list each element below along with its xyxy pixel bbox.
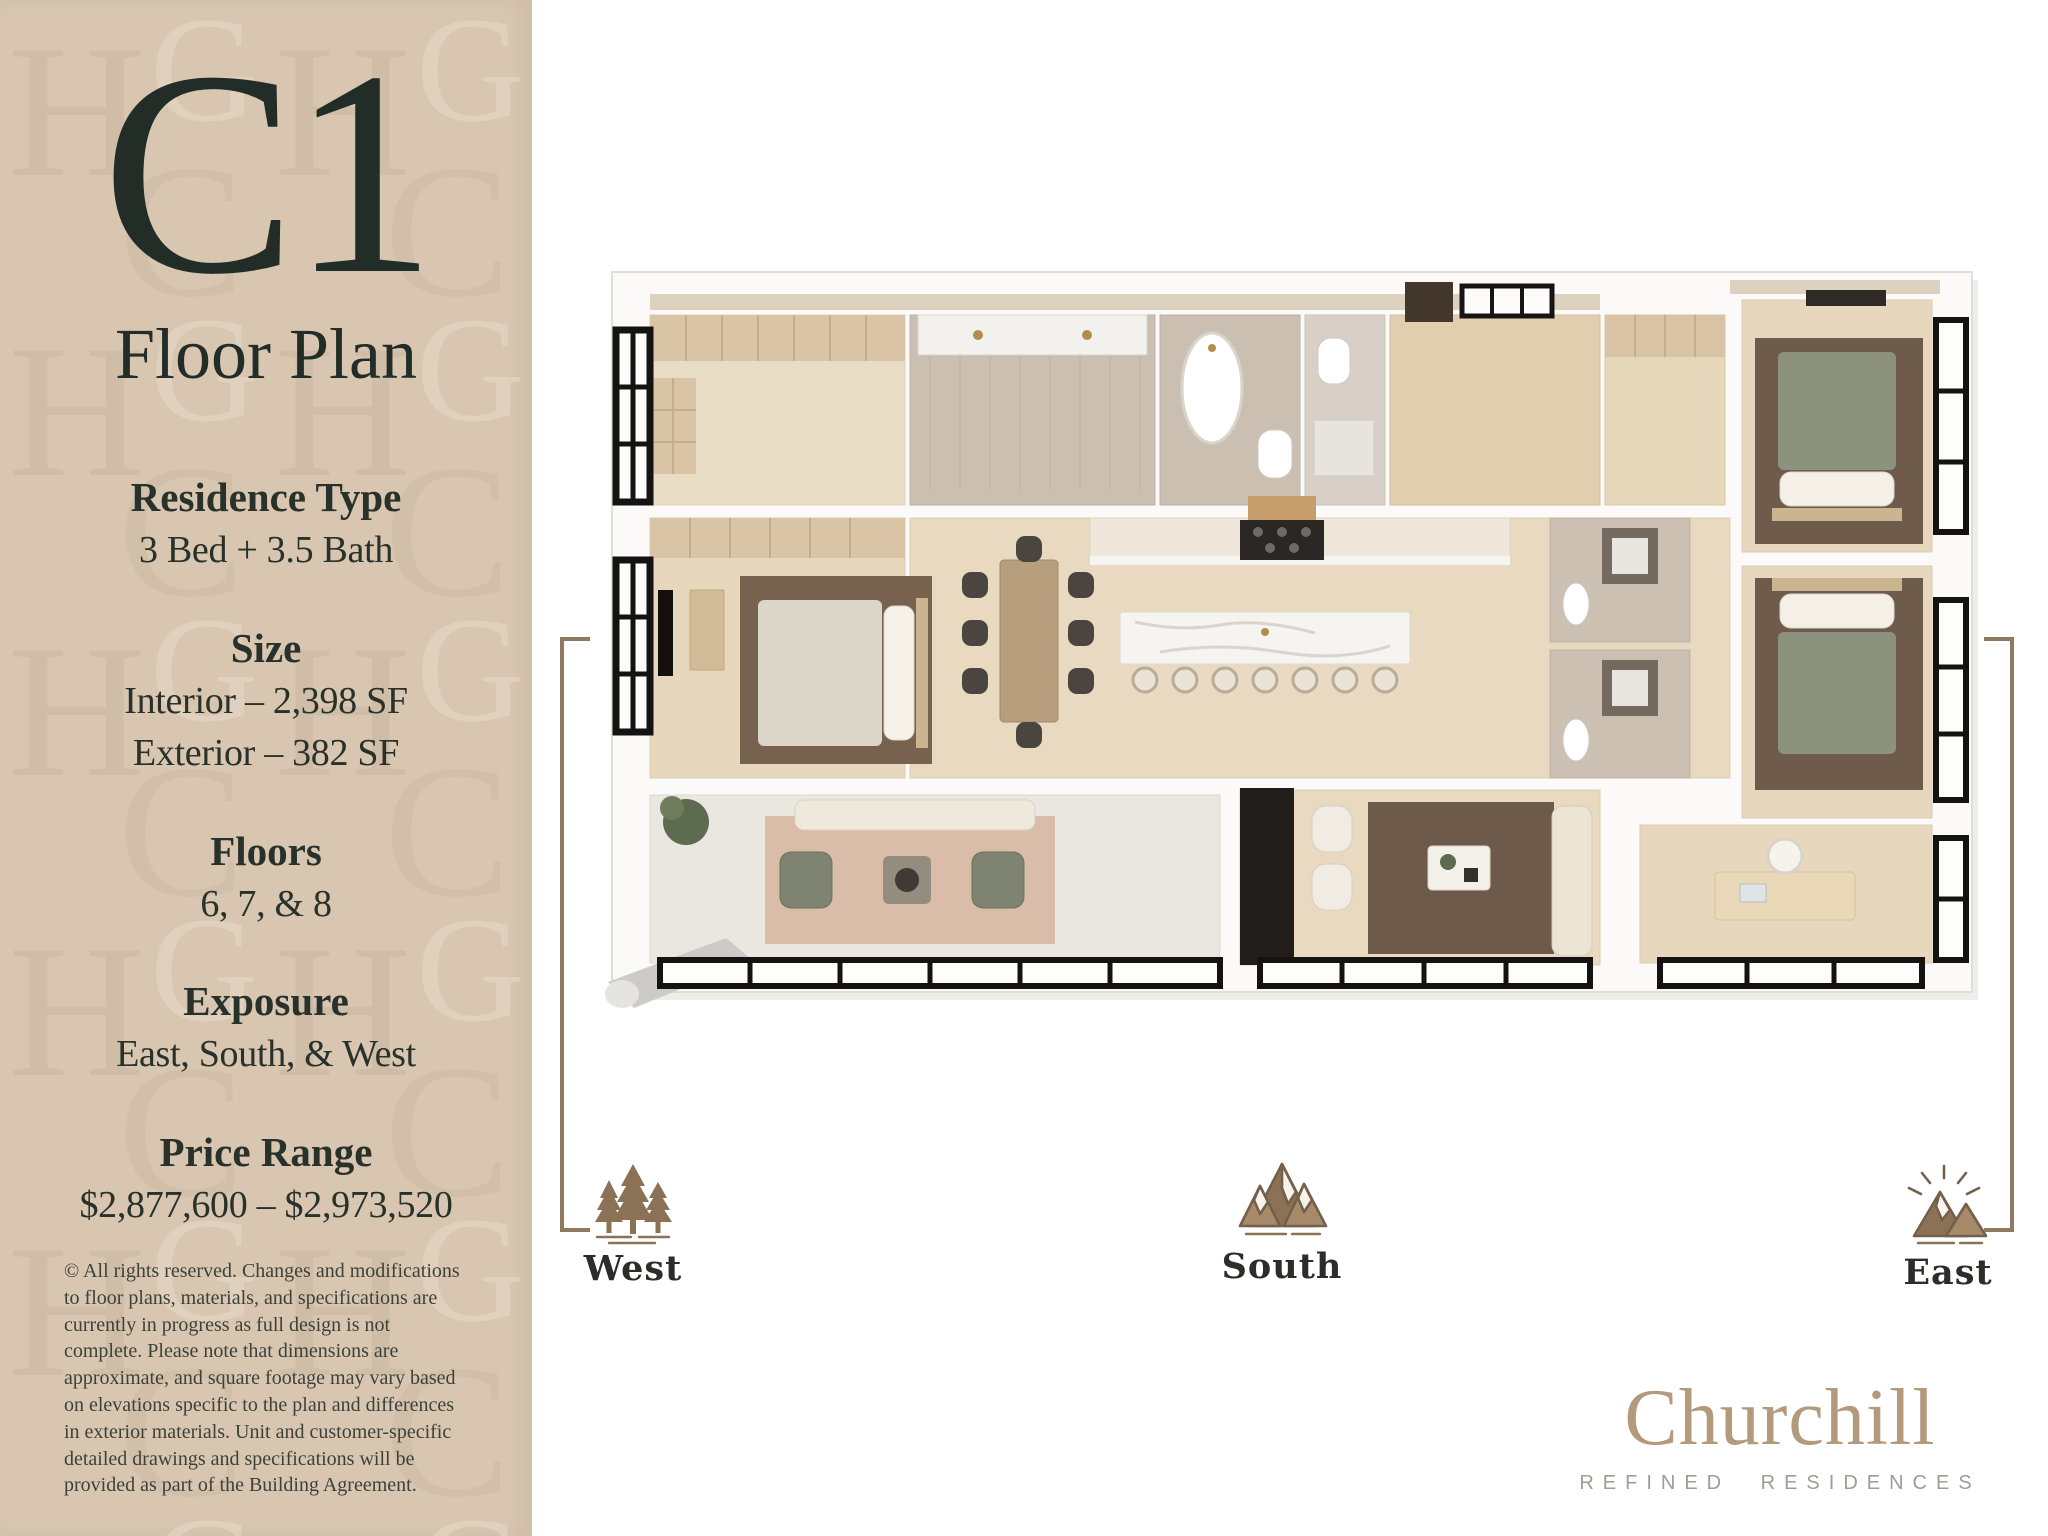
spec-value: Exterior – 382 SF [36,727,496,779]
floor-plan-svg [600,260,1990,1010]
spec-value: $2,877,600 – $2,973,520 [36,1179,496,1231]
spec-label: Residence Type [36,470,496,524]
spec-block: SizeInterior – 2,398 SFExterior – 382 SF [36,621,496,780]
spec-label: Exposure [36,974,496,1028]
legal-disclaimer: © All rights reserved. Changes and modif… [64,1258,466,1499]
entry-foyer [1390,282,1600,505]
primary-bedroom [650,518,932,778]
compass-south-label: South [1172,1246,1392,1287]
compass-west-label: West [523,1248,743,1289]
tub-room [1160,315,1300,505]
plan-title: Floor Plan [0,318,532,390]
primary-bath [910,315,1155,505]
bedroom-3 [1742,566,1932,818]
powder-room [1305,315,1385,505]
living-room [1240,788,1600,965]
compass-south: South [1172,1158,1392,1287]
spec-value: 3 Bed + 3.5 Bath [36,524,496,576]
spec-block: ExposureEast, South, & West [36,974,496,1081]
spec-block: Floors6, 7, & 8 [36,824,496,931]
spec-value: Interior – 2,398 SF [36,675,496,727]
floor-plan-rendering [600,260,1990,1010]
spec-block: Residence Type3 Bed + 3.5 Bath [36,470,496,577]
pine-trees-icon [587,1160,679,1246]
plan-code: C1 [0,28,532,320]
spec-list: Residence Type3 Bed + 3.5 BathSizeInteri… [36,470,496,1275]
bath-b [1550,650,1690,778]
compass-east-label: East [1838,1252,2048,1293]
brand-logo: Churchill REFINED RESIDENCES [1565,1378,1995,1495]
bedroom-2 [1742,290,1932,552]
east-measure-bracket [1984,637,2014,1232]
hall-closets [1605,315,1725,505]
compass-east: East [1838,1158,2048,1293]
spec-label: Price Range [36,1125,496,1179]
west-measure-bracket [560,637,590,1232]
compass-west: West [523,1160,743,1289]
spec-label: Size [36,621,496,675]
south-windows [660,960,1922,986]
brand-name: Churchill [1565,1378,1995,1458]
brand-tagline: REFINED RESIDENCES [1565,1472,1995,1495]
den-office [1640,825,1932,963]
spec-block: Price Range$2,877,600 – $2,973,520 [36,1125,496,1232]
sunrise-mountain-icon [1896,1158,2000,1250]
brochure-page: H C G C1 Floor Plan Residence Type3 Bed … [0,0,2048,1536]
spec-label: Floors [36,824,496,878]
spec-value: East, South, & West [36,1028,496,1080]
mountains-icon [1230,1158,1334,1244]
east-windows [1936,320,1966,960]
walk-in-closet [650,315,905,505]
bath-a [1550,518,1690,642]
sidebar: H C G C1 Floor Plan Residence Type3 Bed … [0,0,532,1536]
spec-value: 6, 7, & 8 [36,878,496,930]
